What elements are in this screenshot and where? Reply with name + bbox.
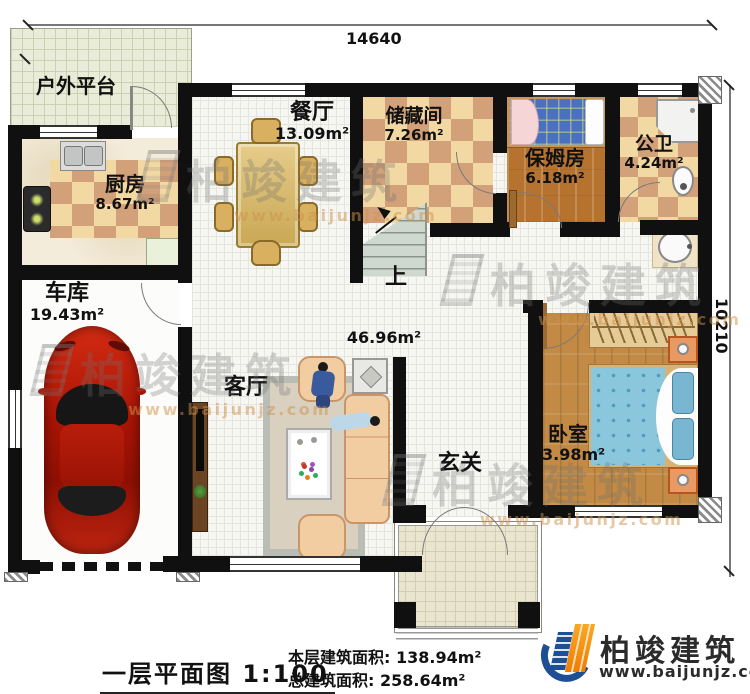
label-garage: 车库19.43m²	[30, 282, 104, 323]
car-mirror	[38, 388, 50, 395]
plant	[194, 485, 206, 498]
knob	[677, 343, 689, 355]
dining-chair	[298, 156, 318, 186]
cup	[311, 437, 317, 443]
sink-basin	[64, 146, 83, 166]
nanny-bed	[506, 96, 606, 148]
nightstand	[668, 336, 698, 363]
window-living	[230, 556, 360, 572]
wall	[393, 357, 406, 523]
knob	[677, 474, 689, 486]
wall	[528, 300, 543, 505]
label-foyer: 玄关	[438, 452, 482, 476]
label-dining: 餐厅13.09m²	[275, 101, 349, 142]
cup	[297, 439, 303, 445]
pillow	[585, 99, 604, 145]
label-living: 客厅	[224, 376, 268, 400]
armchair	[298, 514, 346, 560]
wall	[589, 300, 698, 313]
label-kitchen: 厨房8.67m²	[95, 174, 154, 212]
wall	[350, 97, 363, 283]
label-platform: 户外平台	[36, 76, 116, 98]
window-bath	[638, 83, 682, 97]
label-bedroom: 卧室13.98m²	[531, 424, 605, 463]
wall	[493, 97, 507, 153]
dimension-line-top	[28, 24, 712, 26]
label-living-area: 46.96m²	[347, 329, 421, 346]
dining-chair	[298, 202, 318, 232]
window-garage	[8, 390, 22, 448]
brand-website: www.baijunjz.com	[599, 662, 750, 681]
wall	[430, 223, 493, 237]
wall	[97, 125, 132, 139]
door-leaf-nanny	[509, 190, 517, 228]
person-head	[370, 416, 380, 426]
car	[44, 326, 140, 554]
garage-door-dashed	[40, 562, 163, 571]
person-body	[310, 370, 335, 398]
wall	[575, 83, 638, 97]
wall-hatch	[698, 76, 722, 104]
label-storage: 储藏间7.26m²	[384, 106, 443, 143]
wall	[698, 83, 712, 522]
floor-area-label: 本层建筑面积:	[288, 648, 390, 667]
dimension-right-value: 10210	[712, 298, 731, 354]
brand-logo-icon	[541, 618, 597, 688]
window-dining	[232, 83, 305, 97]
dimension-top-value: 14640	[346, 29, 402, 48]
window-nanny	[533, 83, 575, 97]
wall	[163, 556, 230, 572]
car-mirror	[134, 388, 146, 395]
window-kitchen	[40, 125, 97, 139]
wall-hatch	[176, 572, 200, 582]
sink-basin	[84, 146, 103, 166]
person-lying	[330, 410, 380, 434]
flowers	[302, 464, 307, 469]
wall	[640, 220, 698, 235]
wall	[8, 125, 22, 390]
floor-plan: 户外平台 厨房8.67m² 餐厅13.09m² 储藏间7.26m² 保姆房6.1…	[0, 0, 750, 694]
stove	[23, 186, 51, 232]
person-legs	[316, 395, 330, 408]
wall	[360, 556, 422, 572]
dining-table	[236, 142, 300, 248]
total-area-value: 258.64m²	[380, 671, 465, 690]
door-leaf-platform	[130, 86, 133, 130]
porch-steps	[396, 626, 538, 642]
plan-name: 一层平面图	[102, 660, 232, 688]
toilet-dot	[680, 183, 687, 190]
label-nanny: 保姆房6.18m²	[525, 148, 585, 186]
burner	[30, 193, 44, 207]
label-stairs-up: 上	[385, 266, 407, 290]
shower-drain	[690, 108, 695, 113]
nightstand	[668, 467, 698, 494]
car-roof	[60, 424, 124, 488]
door-leaf-bedroom	[543, 303, 547, 349]
wall	[8, 265, 180, 280]
table-lamp	[360, 366, 383, 389]
total-area-label: 总建筑面积:	[288, 671, 374, 690]
wall	[178, 327, 192, 556]
wall-hatch	[698, 497, 722, 523]
burner	[30, 212, 44, 226]
wall	[393, 505, 426, 523]
blanket	[511, 99, 539, 145]
window-bedroom	[575, 505, 662, 518]
wall-hatch	[4, 572, 28, 582]
wall	[528, 505, 575, 518]
wall	[508, 505, 528, 518]
dining-chair	[251, 240, 281, 266]
person-sitting	[310, 362, 336, 408]
fridge	[146, 238, 180, 266]
dining-chair	[214, 156, 234, 186]
coffee-table	[286, 428, 332, 500]
total-area-line: 总建筑面积: 258.64m²	[288, 667, 465, 691]
floor-area-line: 本层建筑面积: 138.94m²	[288, 644, 481, 668]
dining-chair	[214, 202, 234, 232]
porch-column	[394, 602, 416, 628]
person-body	[329, 411, 373, 431]
wall	[662, 505, 698, 518]
tv	[196, 409, 204, 471]
porch-column	[518, 602, 540, 628]
label-bath: 公卫4.24m²	[624, 134, 683, 171]
bed-pillow	[672, 372, 694, 414]
bed-pillow	[672, 418, 694, 460]
wall	[493, 222, 510, 237]
tv-cabinet	[192, 402, 208, 532]
side-table	[352, 358, 388, 394]
wall	[8, 448, 22, 562]
kitchen-sink	[60, 141, 106, 171]
wall	[178, 83, 192, 283]
floor-area-value: 138.94m²	[396, 648, 481, 667]
wall	[305, 83, 533, 97]
faucet	[687, 244, 692, 249]
